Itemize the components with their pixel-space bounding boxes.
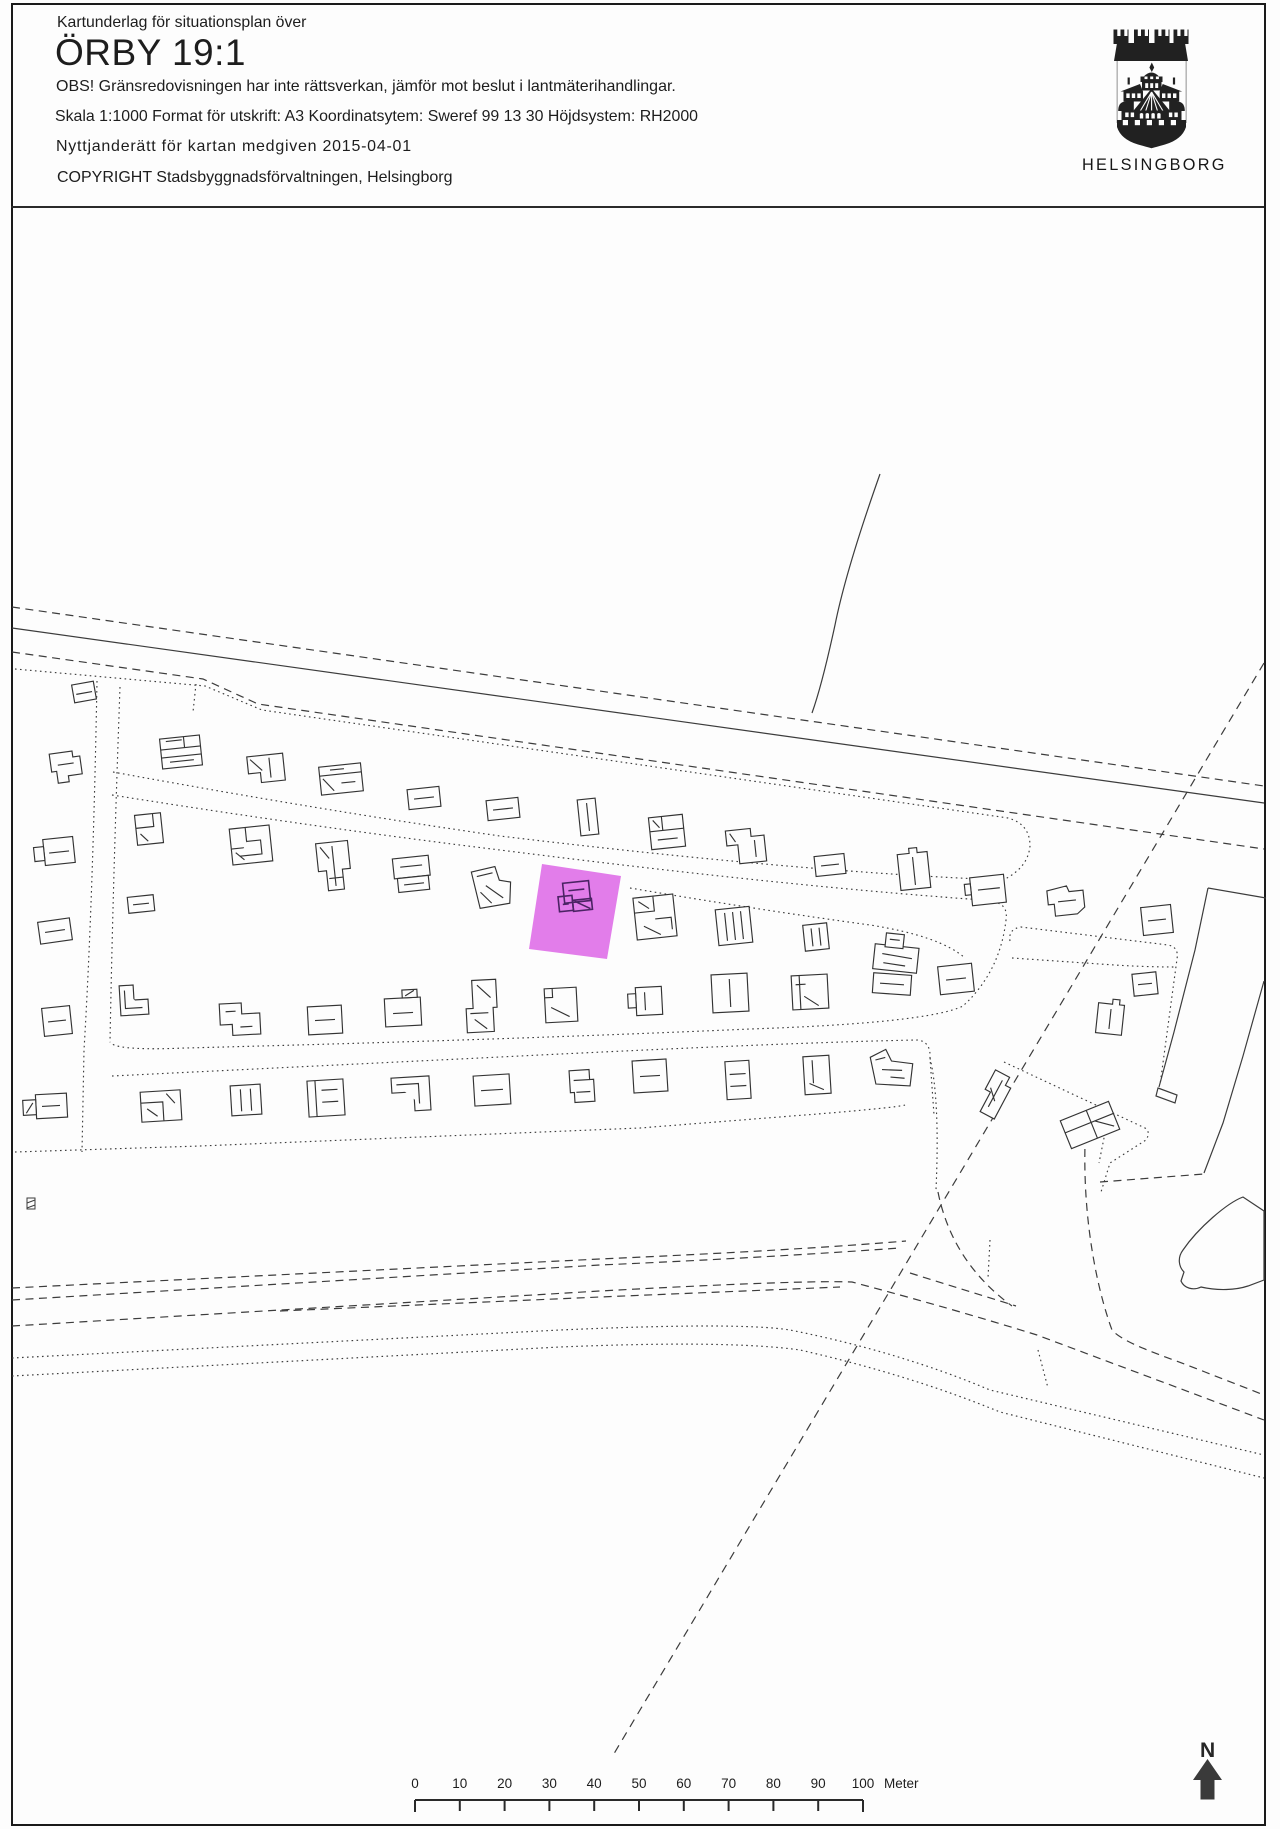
- svg-text:40: 40: [587, 1776, 602, 1791]
- svg-text:N: N: [1200, 1739, 1215, 1762]
- svg-text:20: 20: [497, 1776, 512, 1791]
- svg-text:50: 50: [631, 1776, 646, 1791]
- svg-text:10: 10: [452, 1776, 467, 1791]
- svg-text:80: 80: [766, 1776, 781, 1791]
- svg-text:70: 70: [721, 1776, 736, 1791]
- svg-text:60: 60: [676, 1776, 691, 1791]
- svg-text:90: 90: [811, 1776, 826, 1791]
- svg-text:0: 0: [411, 1776, 419, 1791]
- svg-text:100: 100: [852, 1776, 875, 1791]
- svg-text:30: 30: [542, 1776, 557, 1791]
- svg-text:Meter: Meter: [884, 1776, 919, 1791]
